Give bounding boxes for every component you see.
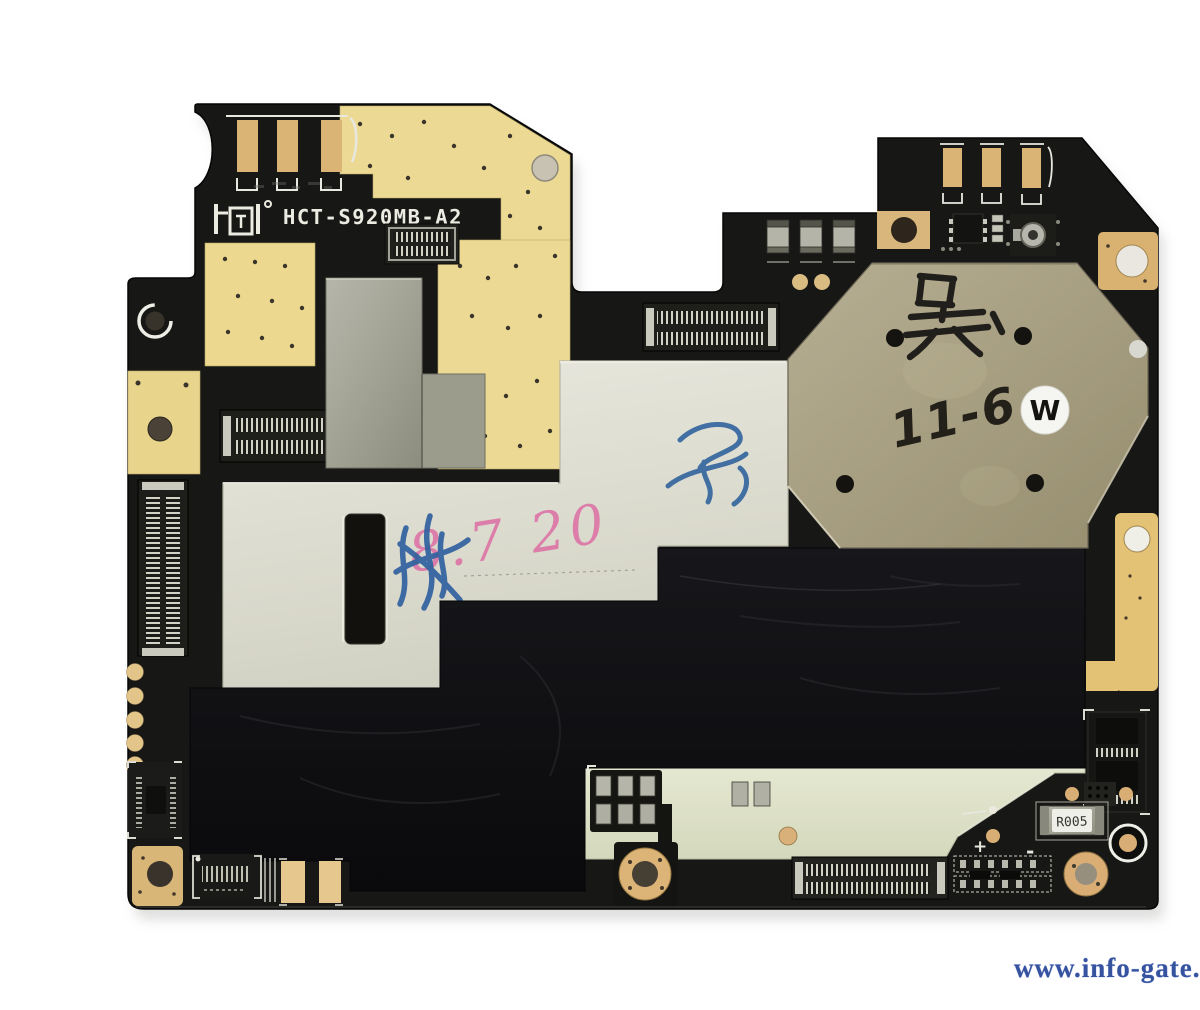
antenna-pad-1 — [943, 148, 962, 187]
sim-pad-2 — [277, 120, 298, 172]
ufl-antenna-connector — [1006, 214, 1060, 256]
pcb-photo-canvas: HCT-S920MB-A2 — [40, 16, 1200, 994]
shield-slot-opening — [345, 514, 385, 644]
antenna-pad-3 — [1022, 148, 1041, 188]
gold-pad-with-hole — [877, 211, 930, 249]
ring-pad-small — [1110, 825, 1146, 861]
resistor-label: R005 — [1056, 814, 1088, 830]
screw-ring-bottom-right — [1064, 852, 1108, 896]
antenna-pad-2 — [982, 148, 1001, 187]
b2b-connector-top-small — [385, 224, 459, 264]
shield-hole-3 — [836, 475, 854, 493]
gold-via-b — [814, 274, 830, 290]
pcb-photo: HCT-S920MB-A2 — [40, 16, 1200, 994]
screw-pad-bottom-left — [132, 846, 183, 906]
round-sticker-w: W — [1021, 386, 1069, 434]
gold-via-d — [1119, 787, 1133, 801]
b2b-connector-center — [643, 303, 779, 351]
screw-pad-top-right — [1098, 232, 1158, 290]
sticker-letter: W — [1030, 394, 1061, 427]
silver-via-right — [1129, 340, 1147, 358]
connector-bottom-left — [192, 854, 262, 900]
small-ic-top-right — [949, 214, 987, 243]
ic-bottom-left — [128, 762, 182, 838]
gold-via-a — [792, 274, 808, 290]
capacitor-column — [992, 215, 1003, 242]
shield-hole-1 — [886, 329, 904, 347]
watermark-text: www.info-gate.gr — [1014, 953, 1200, 983]
b2b-connector-bottom — [792, 857, 948, 899]
b2b-connector-left-vertical — [138, 480, 188, 656]
screw-ring-bottom-center — [619, 848, 671, 900]
gold-via-c — [1065, 787, 1079, 801]
shield-olive-right: 11-6 W — [788, 263, 1148, 548]
gold-via-mid-bottom — [779, 827, 797, 845]
silk-plus: + — [973, 837, 987, 857]
sim-pad-1 — [237, 120, 258, 172]
gold-via-e — [986, 829, 1000, 843]
shunt-resistor-r005: R005 — [1036, 802, 1108, 840]
smd-capacitor-row — [767, 220, 855, 253]
sim-pad-3 — [321, 120, 342, 172]
hole-left-strip — [148, 417, 172, 441]
copper-pad-left-square — [205, 243, 315, 366]
shield-hole-4 — [1026, 474, 1044, 492]
tooling-hole-top-yellow — [532, 155, 558, 181]
shield-hole-2 — [1014, 327, 1032, 345]
